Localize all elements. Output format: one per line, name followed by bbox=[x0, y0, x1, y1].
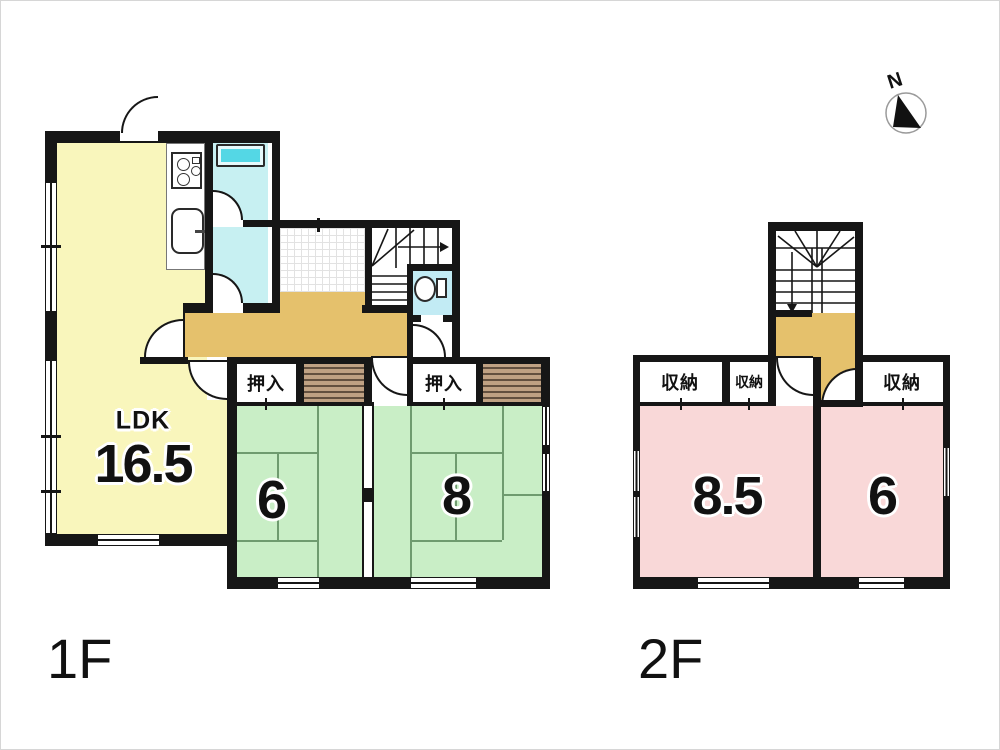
closet-front bbox=[482, 402, 542, 406]
wall bbox=[768, 222, 863, 231]
ldk-size: 16.5 bbox=[94, 433, 191, 495]
window bbox=[633, 450, 640, 492]
room-ldk-sliver bbox=[207, 400, 227, 536]
wall bbox=[943, 355, 950, 447]
wall bbox=[813, 357, 821, 589]
hallway-1f-genkan bbox=[280, 292, 365, 313]
floor-plan-canvas: LDK 16.5 6 8 押入 押入 8.5 6 収納 収納 収納 1F 2F … bbox=[0, 0, 1000, 750]
wall bbox=[542, 446, 550, 453]
wall bbox=[542, 357, 550, 406]
wall bbox=[320, 577, 410, 589]
wall bbox=[863, 355, 943, 362]
closet-front bbox=[303, 402, 365, 406]
window bbox=[410, 577, 477, 589]
window bbox=[45, 360, 57, 534]
entrance-door-arc bbox=[121, 96, 158, 133]
closet-tick bbox=[680, 398, 682, 410]
wall bbox=[476, 357, 482, 406]
wood-panel-1 bbox=[303, 362, 365, 404]
window bbox=[858, 577, 905, 589]
wall bbox=[477, 577, 550, 589]
tatami8-size: 8 bbox=[442, 465, 470, 527]
ldk-south-door-line bbox=[188, 360, 227, 362]
toilet-icon bbox=[414, 276, 436, 302]
wall bbox=[776, 310, 812, 317]
ldk-door-line bbox=[183, 313, 185, 357]
shuno-label-3: 収納 bbox=[883, 369, 921, 395]
wall bbox=[45, 534, 97, 546]
wall bbox=[407, 357, 413, 406]
genkan-tile bbox=[280, 227, 365, 292]
mat-line bbox=[317, 406, 319, 577]
wall bbox=[821, 400, 863, 407]
window bbox=[277, 577, 320, 589]
oshiire-label-1: 押入 bbox=[247, 370, 285, 396]
stairs-2f-lines bbox=[768, 222, 863, 318]
window-tick bbox=[41, 245, 61, 248]
wall bbox=[205, 131, 213, 313]
mat-line bbox=[410, 540, 502, 542]
window bbox=[542, 453, 550, 492]
mat-line bbox=[502, 494, 542, 496]
window-tick bbox=[41, 490, 61, 493]
window-tick bbox=[317, 218, 320, 232]
wall bbox=[452, 220, 460, 364]
stove-icon bbox=[171, 152, 202, 189]
room85-size: 8.5 bbox=[692, 465, 761, 527]
wall bbox=[140, 357, 188, 364]
wall bbox=[45, 131, 57, 182]
window bbox=[633, 496, 640, 538]
wall bbox=[943, 497, 950, 589]
room85-door-line bbox=[776, 356, 813, 358]
wall bbox=[183, 303, 213, 313]
closet-tick bbox=[748, 398, 750, 410]
wall bbox=[722, 355, 730, 406]
wall bbox=[905, 577, 950, 589]
window bbox=[542, 406, 550, 446]
mat-line bbox=[502, 406, 504, 540]
window-tick bbox=[41, 435, 61, 438]
wall bbox=[407, 264, 413, 357]
wall bbox=[362, 305, 410, 313]
shuno-label-1: 収納 bbox=[661, 369, 699, 395]
mat-line bbox=[410, 406, 412, 577]
oshiire-label-2: 押入 bbox=[425, 370, 463, 396]
shuno-label-2: 収納 bbox=[735, 372, 763, 392]
wall bbox=[227, 577, 277, 589]
wall bbox=[768, 222, 776, 406]
tatami-divider-block bbox=[362, 488, 374, 502]
room8-door-line bbox=[371, 356, 407, 358]
room6-2f-size: 6 bbox=[868, 465, 896, 527]
ldk-label: LDK bbox=[116, 407, 170, 436]
sink-icon bbox=[171, 208, 204, 254]
wall bbox=[633, 355, 640, 450]
toilet-tank-icon bbox=[436, 278, 447, 298]
wall bbox=[365, 220, 372, 313]
wall bbox=[243, 303, 280, 313]
closet-tick bbox=[443, 398, 445, 410]
floor-label-1f: 1F bbox=[47, 626, 112, 691]
tatami6-size: 6 bbox=[257, 469, 285, 531]
closet-tick bbox=[265, 398, 267, 410]
floor-label-2f: 2F bbox=[638, 626, 703, 691]
wall bbox=[770, 577, 858, 589]
wall bbox=[542, 492, 550, 589]
wall bbox=[227, 357, 237, 589]
hallway-1f bbox=[183, 313, 407, 357]
wall bbox=[45, 312, 57, 360]
hallway-2f bbox=[776, 313, 855, 357]
wall bbox=[160, 534, 237, 546]
wall bbox=[443, 315, 460, 322]
wall bbox=[365, 357, 372, 406]
mat-line bbox=[237, 540, 317, 542]
bathtub-icon bbox=[216, 144, 265, 167]
wall bbox=[158, 131, 280, 143]
wall bbox=[296, 357, 303, 406]
north-arrow-icon bbox=[880, 88, 932, 140]
wall bbox=[407, 315, 421, 322]
window bbox=[697, 577, 770, 589]
room-tatami-6 bbox=[237, 406, 362, 577]
wall bbox=[855, 222, 863, 406]
wall bbox=[633, 355, 768, 362]
window bbox=[943, 447, 950, 497]
wood-panel-2 bbox=[482, 362, 542, 404]
window bbox=[97, 534, 160, 546]
wall bbox=[633, 577, 697, 589]
closet-tick bbox=[902, 398, 904, 410]
